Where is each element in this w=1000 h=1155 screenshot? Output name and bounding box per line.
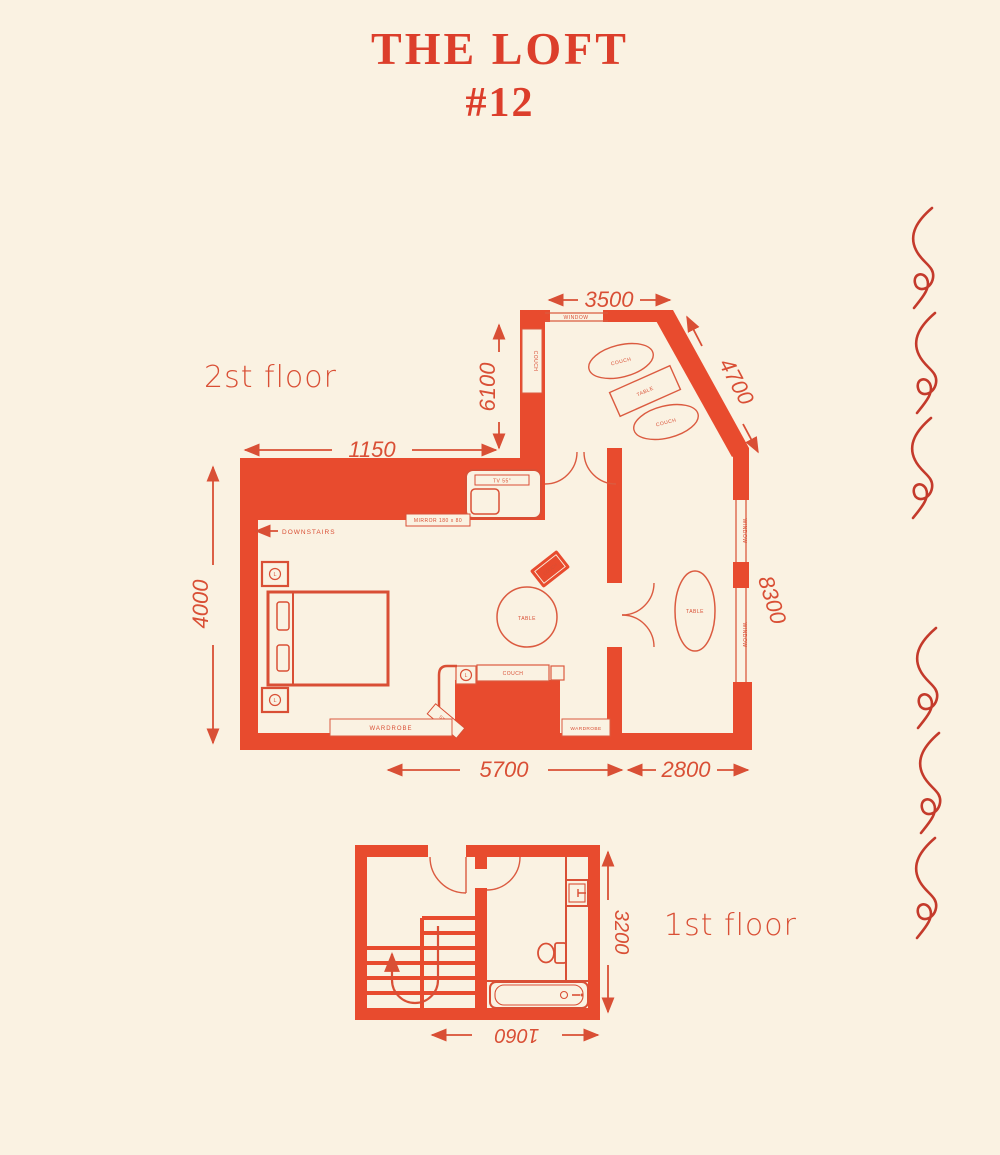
- tub-drain-icon: [561, 992, 568, 999]
- wave-curl-icon: [913, 208, 933, 308]
- floor2-label: 2st floor: [204, 360, 337, 395]
- couch-oval-2: COUCH: [630, 398, 702, 445]
- dim-5700: 5700: [388, 757, 622, 782]
- couch-label: COUCH: [610, 357, 632, 368]
- entry-door-arc: [430, 857, 466, 893]
- door-leaf-arc: [622, 583, 654, 615]
- wall-top-right: [466, 845, 600, 857]
- toilet-tank: [555, 943, 566, 963]
- pillow: [277, 645, 289, 671]
- window-label: WINDOW: [564, 315, 589, 321]
- floor1-plan: 3200 1060: [355, 845, 632, 1046]
- dim-label: 2800: [661, 757, 712, 782]
- wave-group-bottom: [916, 628, 940, 938]
- sink: [566, 880, 588, 906]
- tv-niche: TV 55": [466, 470, 541, 518]
- tub-knob-icon: [581, 994, 584, 997]
- decor-waves: [912, 208, 940, 938]
- dim-1060: 1060: [432, 1024, 598, 1046]
- wardrobe-label: WARDROBE: [369, 726, 412, 732]
- toilet-bowl: [538, 944, 554, 963]
- couch-oval-1: COUCH: [585, 337, 657, 384]
- dim-label: 6100: [475, 362, 500, 412]
- bathroom-door-arc: [487, 857, 520, 890]
- dim-2800: 2800: [628, 757, 748, 782]
- wave-curl-icon: [916, 838, 936, 938]
- couch-label: COUCH: [532, 351, 538, 372]
- wall-right-mid: [733, 562, 749, 588]
- lamp-label: L: [273, 572, 276, 578]
- dim-label: 1060: [495, 1024, 540, 1046]
- wall-left: [355, 845, 367, 1020]
- dim-label: 8300: [753, 573, 791, 628]
- wardrobe-label: WARDROBE: [570, 726, 601, 732]
- door-leaf-arc: [622, 615, 654, 647]
- window-right-lower: WINDOW: [736, 588, 747, 682]
- wave-curl-icon: [917, 628, 937, 728]
- wall-inner-stub: [475, 857, 487, 869]
- pillow: [277, 602, 289, 630]
- chair-red: COUCH: [530, 550, 570, 588]
- double-door-right-room: [622, 583, 654, 647]
- window-label: WINDOW: [741, 519, 747, 544]
- dim-label: 4000: [188, 579, 213, 629]
- door-leaf-arc: [545, 452, 577, 484]
- title-line1: THE LOFT: [0, 26, 1000, 72]
- double-door-top: [545, 452, 616, 484]
- stair-void-block: [455, 680, 560, 735]
- dim-3200: 3200: [608, 852, 632, 1012]
- dim-label: 1150: [348, 437, 396, 462]
- window-label: WINDOW: [741, 623, 747, 648]
- floor1-label: 1st floor: [664, 908, 797, 943]
- stair-partition: [439, 666, 457, 708]
- wall-inner: [475, 888, 487, 1008]
- table-label: TABLE: [686, 609, 704, 615]
- wardrobe-right: WARDROBE: [562, 719, 610, 736]
- wall-right: [588, 845, 600, 1020]
- tv-label: TV 55": [493, 479, 511, 485]
- wall-bottom: [240, 733, 752, 750]
- dim-3500: 3500: [549, 287, 670, 312]
- wardrobe-left: WARDROBE: [330, 719, 452, 736]
- couch-label: COUCH: [503, 671, 524, 677]
- wall-inner-upper: [607, 448, 622, 583]
- wave-group-top: [912, 208, 936, 518]
- wall-bottom: [355, 1008, 600, 1020]
- dim-label: 5700: [480, 757, 530, 782]
- lamp-label: L: [273, 698, 276, 704]
- round-table: TABLE: [497, 587, 557, 647]
- staircase: [367, 918, 475, 1008]
- couch-label: COUCH: [655, 418, 677, 429]
- table-rect: TABLE: [610, 366, 681, 417]
- mirror-label: MIRROR 180 x 80: [414, 518, 462, 524]
- stair-treads: [367, 918, 475, 1008]
- wave-curl-icon: [920, 733, 940, 833]
- dim-label: 3200: [610, 910, 632, 955]
- niche-outline: [466, 470, 541, 518]
- lamp-label: L: [465, 673, 468, 679]
- tub-inner: [495, 985, 583, 1005]
- title-line2: #12: [0, 82, 1000, 124]
- side-table: [551, 666, 564, 680]
- nightstand-bottom: L: [262, 688, 288, 712]
- bathroom: [487, 857, 588, 1008]
- page-title: THE LOFT #12: [0, 26, 1000, 124]
- mirror: MIRROR 180 x 80: [406, 514, 470, 526]
- window-right-upper: WINDOW: [736, 500, 747, 562]
- dim-8300: 8300: [753, 573, 791, 628]
- floorplan-drawing: WINDOW WINDOW WINDOW: [0, 0, 1000, 1150]
- wave-curl-icon: [912, 418, 932, 518]
- nightstand-top: L: [262, 562, 288, 586]
- couch-shape: [522, 329, 542, 393]
- table-label: TABLE: [518, 616, 536, 622]
- downstairs: DOWNSTAIRS: [256, 529, 336, 536]
- dim-6100: 6100: [475, 325, 500, 448]
- downstairs-label: DOWNSTAIRS: [282, 529, 336, 536]
- couch-bottom: COUCH L: [456, 665, 564, 684]
- floorplan-page: THE LOFT #12 2st floor 1st floor: [0, 0, 1000, 1150]
- bathtub: [490, 982, 588, 1008]
- wall-right-lower: [733, 682, 752, 750]
- wall-right-upper: [733, 448, 749, 500]
- oval-table-right-room: TABLE: [675, 571, 715, 651]
- couch-entry-wall: COUCH: [522, 329, 542, 393]
- dim-label: 3500: [585, 287, 635, 312]
- dim-4000: 4000: [188, 467, 213, 743]
- bed: [268, 592, 388, 685]
- table-label: TABLE: [636, 385, 655, 398]
- window-cap: [545, 310, 550, 322]
- wave-curl-icon: [916, 313, 936, 413]
- toilet: [538, 943, 566, 963]
